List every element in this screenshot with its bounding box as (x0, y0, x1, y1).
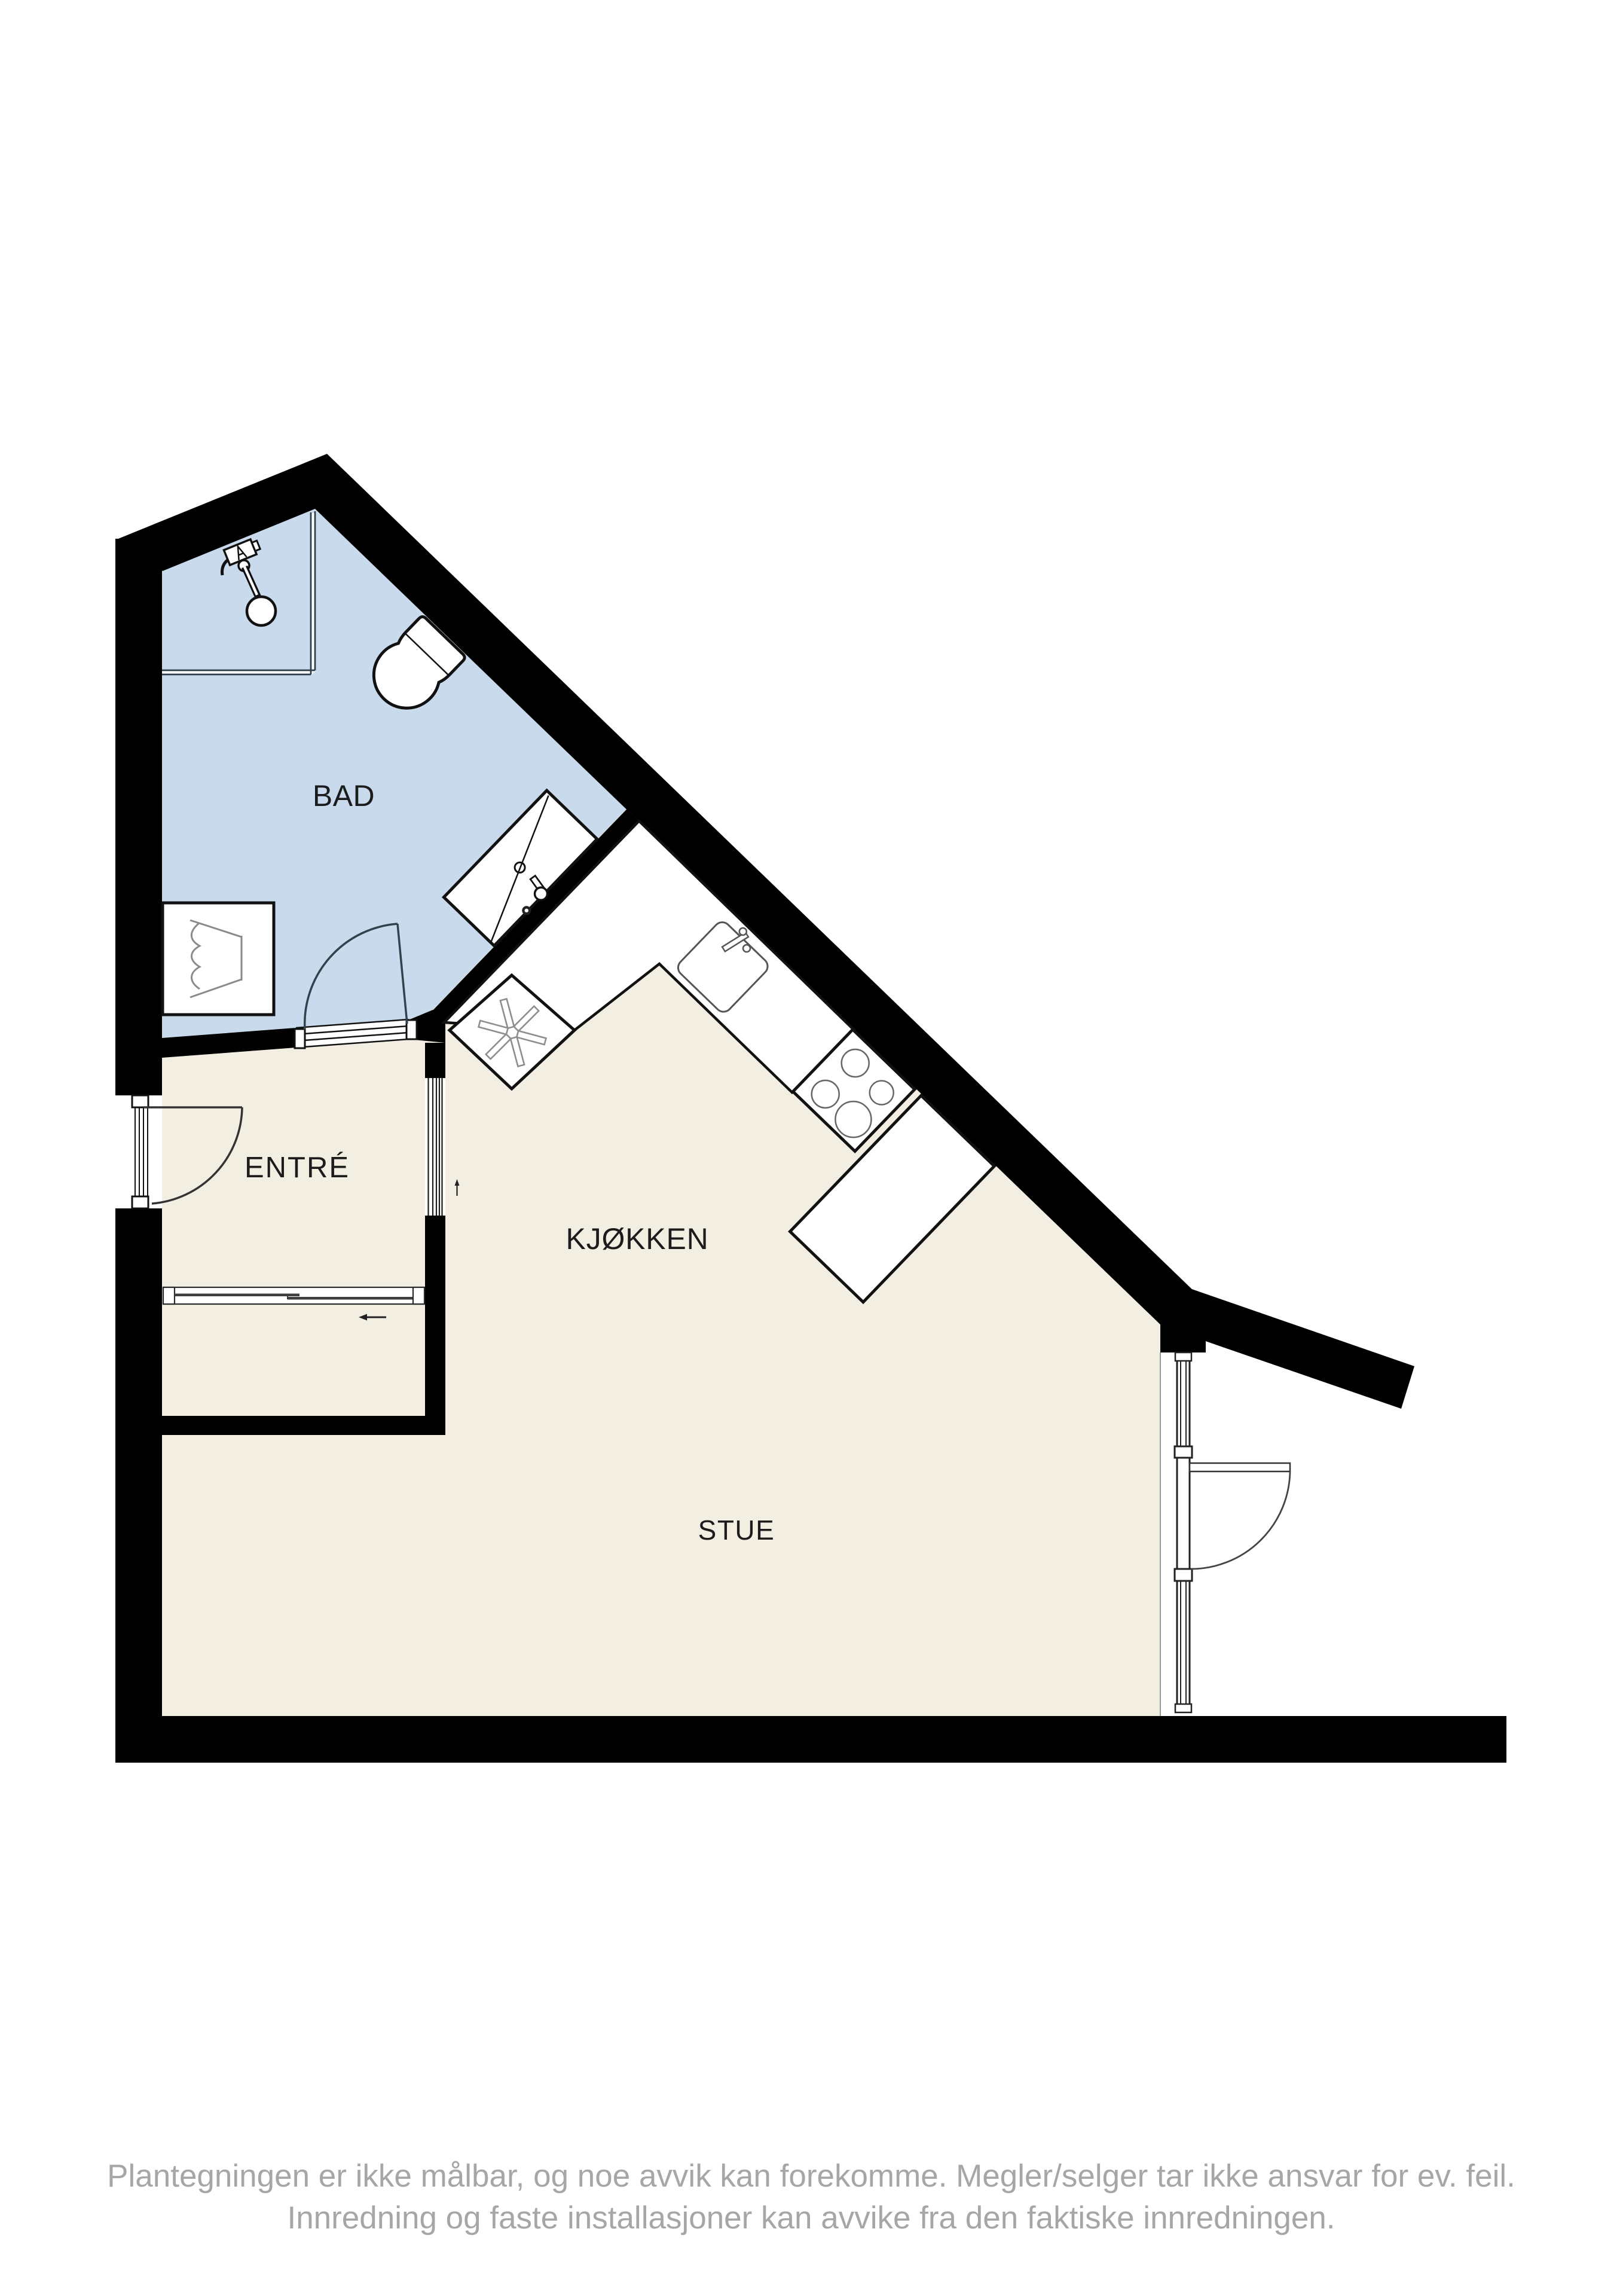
svg-text:ENTRÉ: ENTRÉ (244, 1152, 350, 1184)
svg-text:Plantegningen er ikke målbar,: Plantegningen er ikke målbar, og noe avv… (107, 2158, 1515, 2194)
svg-text:BAD: BAD (313, 779, 375, 813)
svg-text:Innredning og faste installasj: Innredning og faste installasjoner kan a… (287, 2200, 1335, 2236)
svg-text:KJØKKEN: KJØKKEN (566, 1222, 709, 1256)
svg-text:STUE: STUE (698, 1515, 775, 1546)
